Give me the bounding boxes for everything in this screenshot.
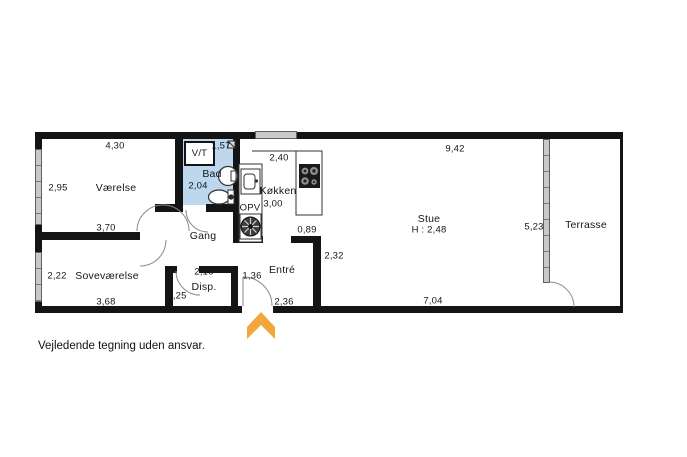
stove-icon xyxy=(299,164,320,188)
dim-stue-right: 5,23 xyxy=(524,222,543,233)
dim-koekken-top: 2,40 xyxy=(269,153,288,164)
door-arc-vaerelse xyxy=(137,205,189,231)
dim-sovevaerelse-bottom: 3,68 xyxy=(96,297,115,308)
dim-entre-bottom: 2,36 xyxy=(274,297,293,308)
room-label-koekken: Køkken xyxy=(260,185,297,197)
dim-bad-top: 1,57 xyxy=(211,141,230,152)
dim-koekken-left: 3,00 xyxy=(263,199,282,210)
dim-entre-left: 1,36 xyxy=(242,271,261,282)
dim-stue-bottom: 7,04 xyxy=(423,296,442,307)
toilet-icon xyxy=(209,190,235,204)
dim-vaerelse-left: 2,95 xyxy=(48,183,67,194)
dim-vaerelse-top: 4,30 xyxy=(105,141,124,152)
washing-machine-icon xyxy=(240,214,261,239)
dim-disp-left: 1,25 xyxy=(167,291,186,302)
room-label-gang: Gang xyxy=(190,230,217,242)
floor-plan: V/T xyxy=(0,0,687,457)
label-stue-ceiling-height: H : 2,48 xyxy=(412,225,447,236)
room-label-sovevaerelse: Soveværelse xyxy=(75,270,138,282)
room-label-disp: Disp. xyxy=(192,281,217,293)
room-label-entre: Entré xyxy=(269,264,295,276)
dim-stue-opening: 0,89 xyxy=(297,225,316,236)
dim-disp-top: 2,18 xyxy=(194,267,213,278)
room-label-terrasse: Terrasse xyxy=(565,219,607,231)
dim-vaerelse-bottom: 3,70 xyxy=(96,223,115,234)
door-arc-sovevaerelse xyxy=(140,240,166,266)
disclaimer-text: Vejledende tegning uden ansvar. xyxy=(38,340,205,352)
dim-stue-top: 9,42 xyxy=(445,144,464,155)
label-opv-dishwasher: OPV xyxy=(240,203,261,214)
door-arc-terrasse xyxy=(549,282,574,307)
dim-sovevaerelse-left: 2,22 xyxy=(47,271,66,282)
room-label-vaerelse: Værelse xyxy=(96,182,137,194)
dim-bad-left: 2,04 xyxy=(188,181,207,192)
room-label-stue: Stue xyxy=(418,213,440,225)
kitchen-sink-icon xyxy=(241,169,260,194)
entrance-arrow-icon xyxy=(247,312,275,339)
dim-stue-wall-left: 2,32 xyxy=(324,251,343,262)
room-label-bad: Bad xyxy=(202,168,221,180)
